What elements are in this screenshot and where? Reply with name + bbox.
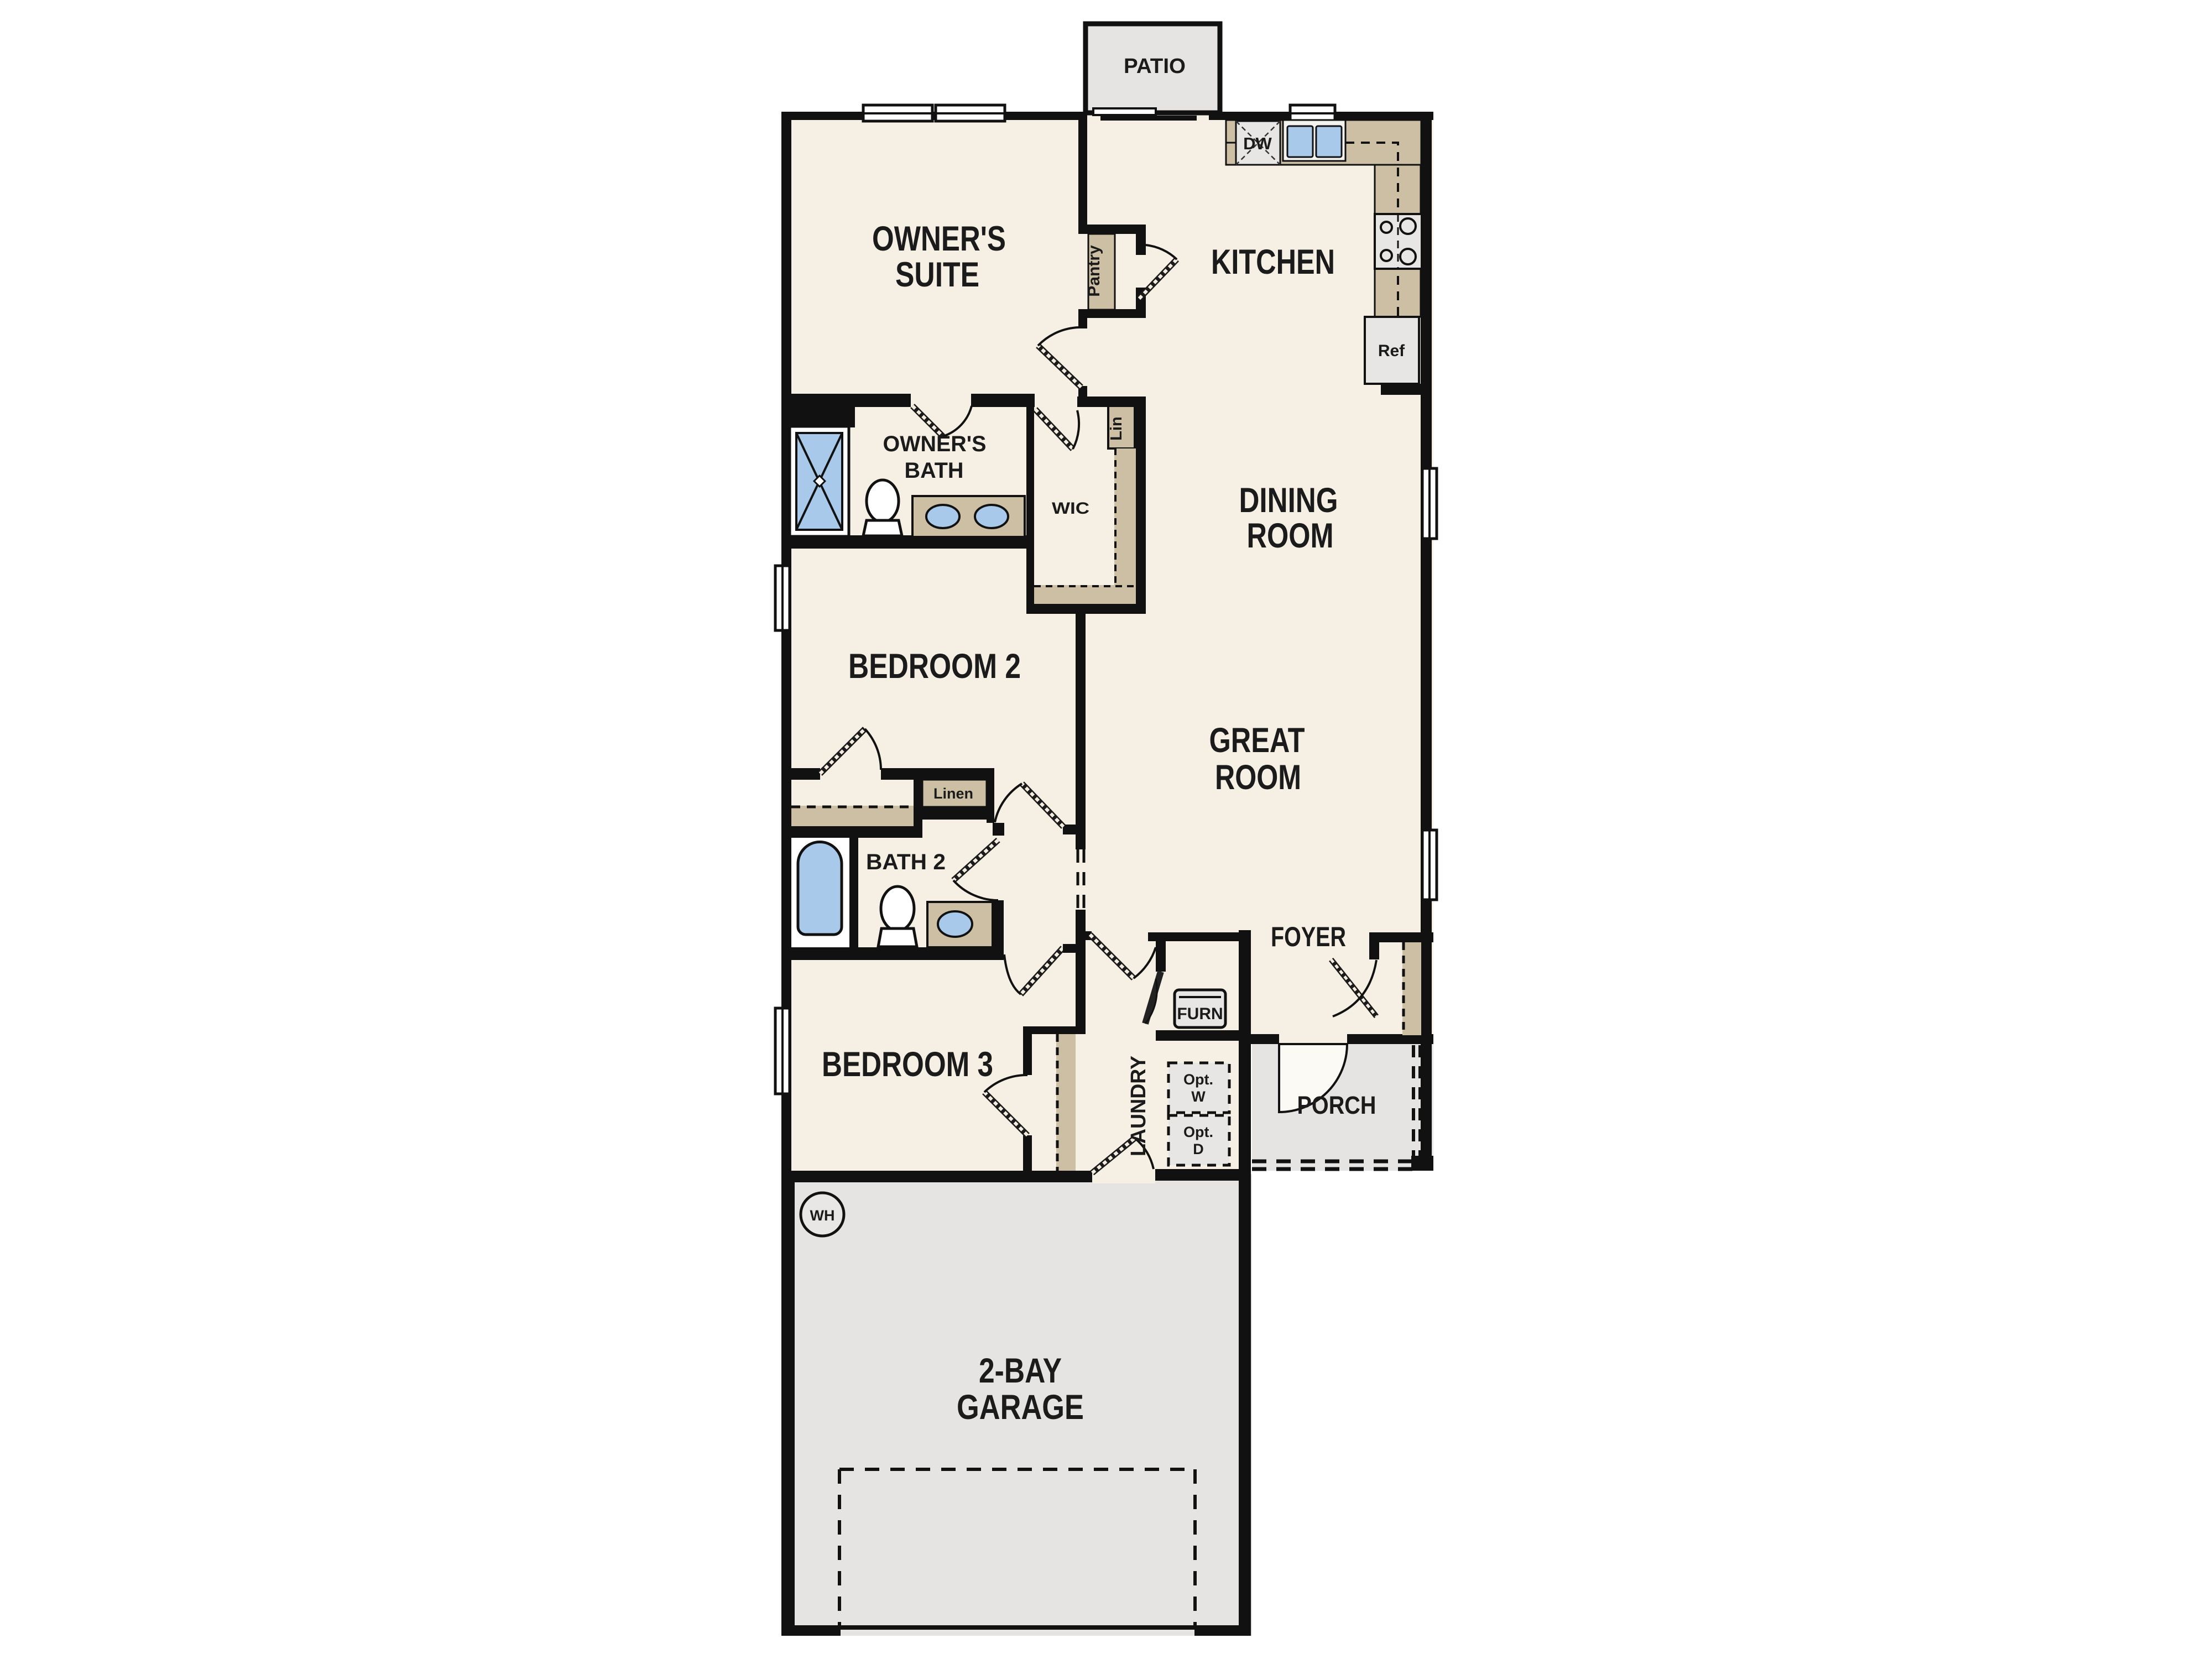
svg-text:GREAT: GREAT xyxy=(1209,721,1305,760)
svg-text:DINING: DINING xyxy=(1239,481,1338,520)
svg-text:PORCH: PORCH xyxy=(1297,1091,1376,1119)
svg-text:BEDROOM 2: BEDROOM 2 xyxy=(848,647,1021,686)
svg-text:FURN: FURN xyxy=(1177,1005,1223,1023)
svg-text:BATH: BATH xyxy=(905,458,964,483)
svg-text:Opt.: Opt. xyxy=(1183,1071,1213,1088)
svg-text:Ref: Ref xyxy=(1378,342,1405,360)
svg-text:WH: WH xyxy=(810,1207,835,1224)
svg-text:LAUNDRY: LAUNDRY xyxy=(1127,1056,1150,1156)
svg-text:OWNER'S: OWNER'S xyxy=(883,432,987,456)
svg-text:SUITE: SUITE xyxy=(895,255,979,294)
svg-text:ROOM: ROOM xyxy=(1247,517,1334,555)
svg-text:PATIO: PATIO xyxy=(1124,55,1186,78)
svg-text:Pantry: Pantry xyxy=(1085,245,1103,297)
svg-text:Linen: Linen xyxy=(933,785,973,802)
svg-text:BATH 2: BATH 2 xyxy=(866,850,946,874)
svg-text:Lin: Lin xyxy=(1108,416,1125,441)
svg-text:GARAGE: GARAGE xyxy=(957,1388,1084,1427)
svg-text:BEDROOM 3: BEDROOM 3 xyxy=(822,1045,993,1084)
svg-text:OWNER'S: OWNER'S xyxy=(872,220,1006,258)
svg-text:FOYER: FOYER xyxy=(1271,921,1346,952)
svg-text:Opt.: Opt. xyxy=(1183,1124,1213,1140)
svg-text:W: W xyxy=(1191,1088,1206,1105)
svg-text:2-BAY: 2-BAY xyxy=(979,1352,1062,1390)
svg-text:DW: DW xyxy=(1243,134,1272,153)
svg-text:ROOM: ROOM xyxy=(1215,758,1301,797)
svg-text:WIC: WIC xyxy=(1052,499,1089,518)
svg-text:D: D xyxy=(1193,1141,1204,1157)
svg-text:KITCHEN: KITCHEN xyxy=(1211,243,1335,281)
